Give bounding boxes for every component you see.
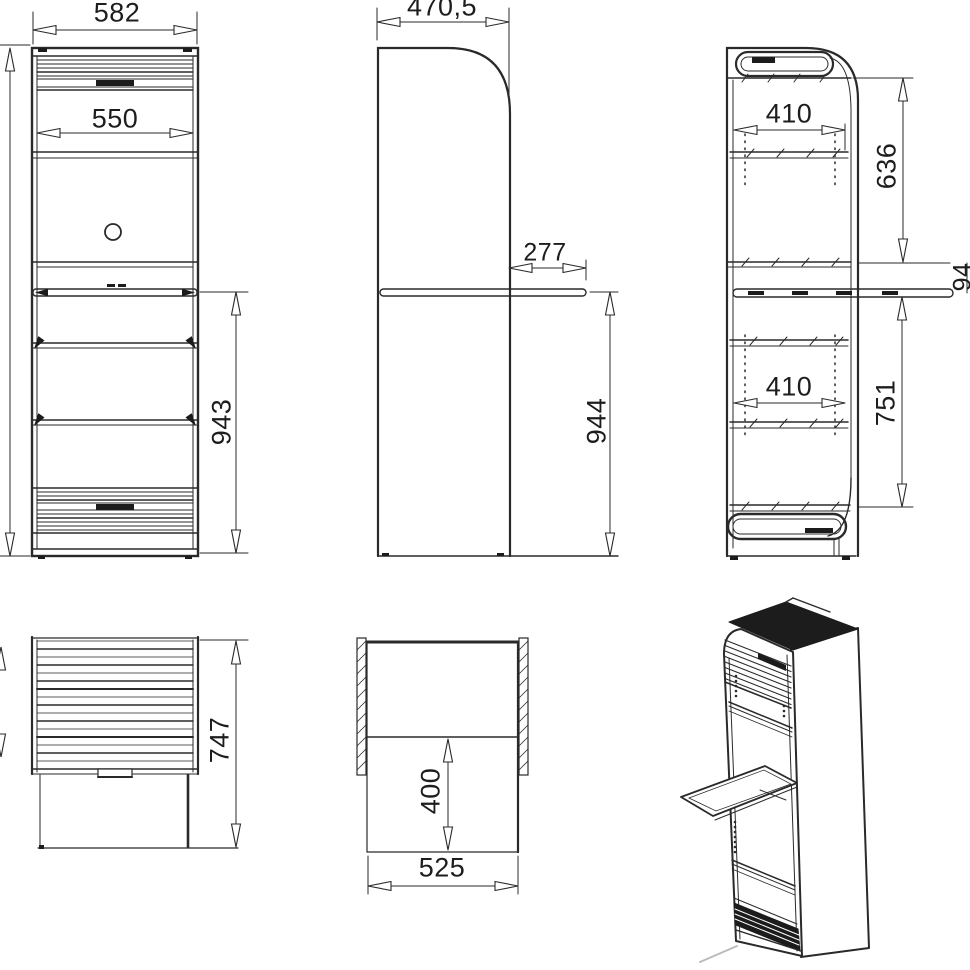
dim-lower-section-height-label: 747 [207, 717, 234, 764]
drawing-linework [0, 0, 970, 970]
dim-overall-width-label: 582 [94, 0, 141, 27]
dim-top-to-rail-label: 636 [874, 143, 901, 190]
dim-shelf-width-lower-label: 410 [766, 374, 813, 401]
section-view [727, 48, 967, 560]
dim-shelf-width-upper-label: 410 [766, 101, 813, 128]
technical-drawing-sheet: 582 550 943 470,5 277 944 410 636 94 410… [0, 0, 970, 970]
dim-tray-to-bottom-shelf-label: 751 [873, 380, 900, 427]
front-view [0, 12, 248, 559]
dim-height-to-tray-label: 944 [584, 398, 611, 445]
dim-plan-inner-width-label: 525 [419, 855, 466, 882]
dim-plan-inner-depth-label: 400 [418, 768, 445, 815]
dim-front-height-label: 943 [209, 399, 236, 446]
dim-depth-label: 470,5 [407, 0, 477, 21]
side-view [377, 8, 618, 556]
dim-rail-to-tray-label: 94 [951, 263, 970, 292]
isometric-view [681, 598, 869, 962]
dim-door-clear-width-label: 550 [92, 106, 139, 133]
dim-tray-extension-label: 277 [523, 241, 566, 266]
